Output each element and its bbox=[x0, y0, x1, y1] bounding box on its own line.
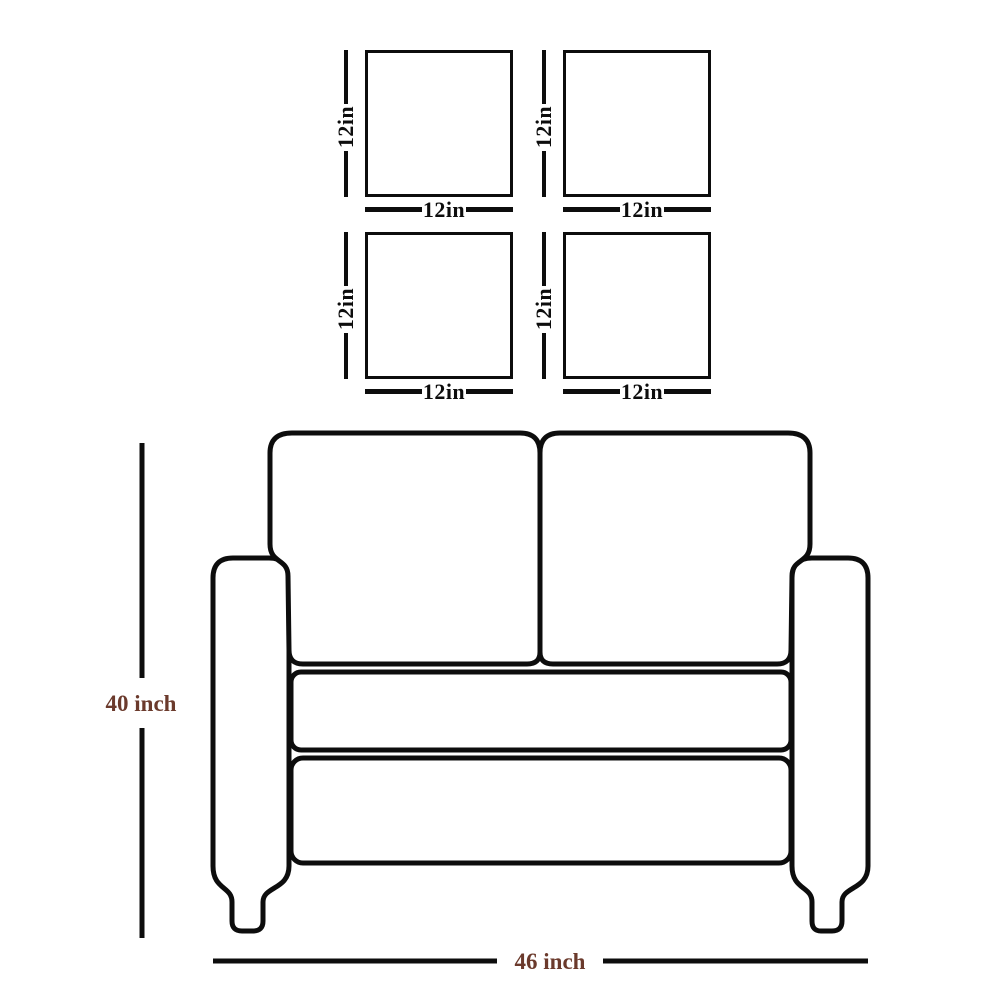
sofa-armrest-right bbox=[792, 558, 868, 931]
pillow-height-label: 12in bbox=[531, 106, 557, 148]
sofa-width-label: 46 inch bbox=[515, 949, 586, 974]
height-dimension-line-segment bbox=[542, 151, 546, 197]
pillow-height-label: 12in bbox=[333, 288, 359, 330]
pillow-outline bbox=[365, 232, 513, 379]
height-dimension-line-segment bbox=[344, 232, 348, 286]
sofa-base bbox=[291, 758, 791, 863]
width-dimension-line-segment bbox=[466, 389, 513, 394]
width-dimension-line-segment bbox=[664, 207, 711, 212]
pillow-dimension-group-2: 12in 12in bbox=[531, 50, 716, 222]
pillow-outline bbox=[563, 50, 711, 197]
sofa-back-cushion-right bbox=[540, 433, 810, 664]
width-dimension-line-segment bbox=[563, 389, 620, 394]
height-dimension-line-segment bbox=[344, 50, 348, 104]
sofa-illustration: 40 inch 46 inch bbox=[0, 420, 1000, 1000]
pillow-width-label: 12in bbox=[423, 379, 465, 405]
height-dimension-line-segment bbox=[542, 50, 546, 104]
sofa-height-label: 40 inch bbox=[106, 691, 177, 716]
width-dimension-line-segment bbox=[365, 389, 422, 394]
height-dimension-line-segment bbox=[344, 333, 348, 379]
width-dimension-line-segment bbox=[664, 389, 711, 394]
pillow-outline bbox=[365, 50, 513, 197]
pillow-height-label: 12in bbox=[333, 106, 359, 148]
height-dimension-line-segment bbox=[542, 333, 546, 379]
height-dimension-line-segment bbox=[344, 151, 348, 197]
pillow-dimension-group-1: 12in 12in bbox=[333, 50, 518, 222]
pillow-width-label: 12in bbox=[423, 197, 465, 223]
width-dimension-line-segment bbox=[365, 207, 422, 212]
pillow-height-label: 12in bbox=[531, 288, 557, 330]
width-dimension-line-segment bbox=[563, 207, 620, 212]
height-dimension-line-segment bbox=[542, 232, 546, 286]
sofa-seat-cushion bbox=[291, 672, 791, 750]
pillow-dimension-group-3: 12in 12in bbox=[333, 232, 518, 404]
pillow-outline bbox=[563, 232, 711, 379]
sofa-armrest-left bbox=[213, 558, 289, 931]
width-dimension-line-segment bbox=[466, 207, 513, 212]
sofa-back-cushion-left bbox=[270, 433, 540, 664]
pillow-width-label: 12in bbox=[621, 379, 663, 405]
pillow-dimension-group-4: 12in 12in bbox=[531, 232, 716, 404]
dimension-diagram: 12in 12in 12in 12in 12in 12in 12in 12in bbox=[0, 0, 1000, 1000]
pillow-width-label: 12in bbox=[621, 197, 663, 223]
